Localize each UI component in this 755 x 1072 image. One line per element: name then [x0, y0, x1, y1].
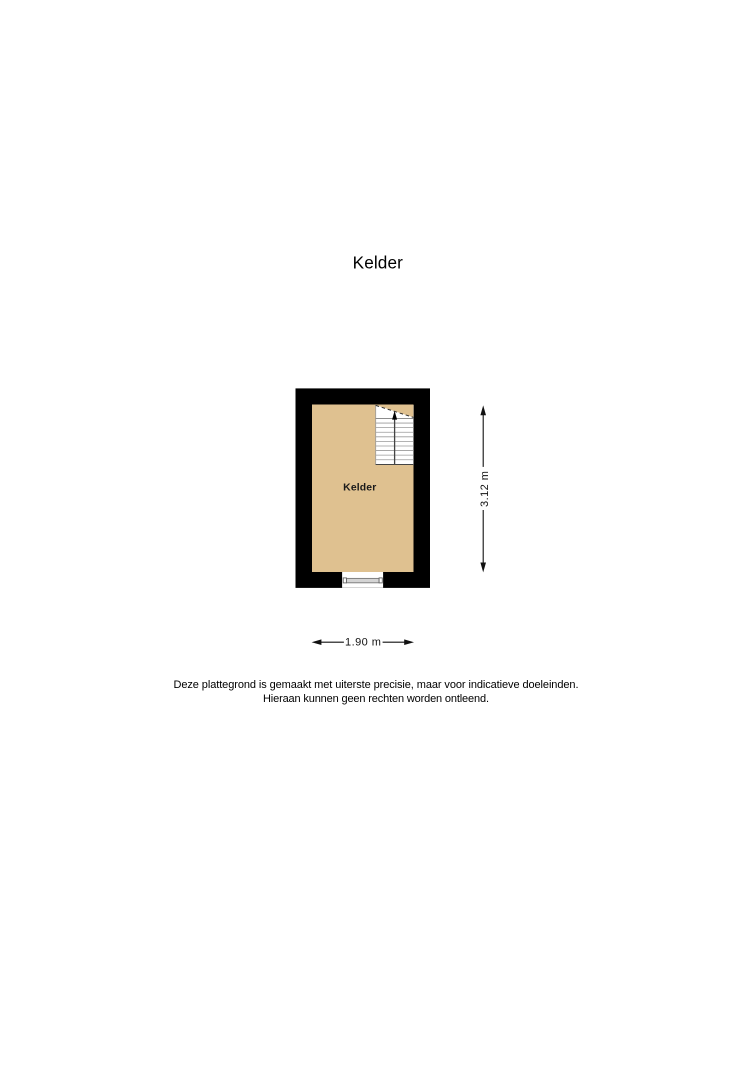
svg-text:3.12 m: 3.12 m — [479, 471, 491, 507]
svg-text:1.90 m: 1.90 m — [345, 637, 381, 649]
svg-text:Deze plattegrond is gemaakt me: Deze plattegrond is gemaakt met uiterste… — [174, 679, 579, 691]
svg-text:Kelder: Kelder — [353, 252, 403, 272]
svg-text:Hieraan kunnen geen rechten wo: Hieraan kunnen geen rechten worden ontle… — [263, 693, 489, 705]
svg-text:Kelder: Kelder — [343, 482, 376, 493]
